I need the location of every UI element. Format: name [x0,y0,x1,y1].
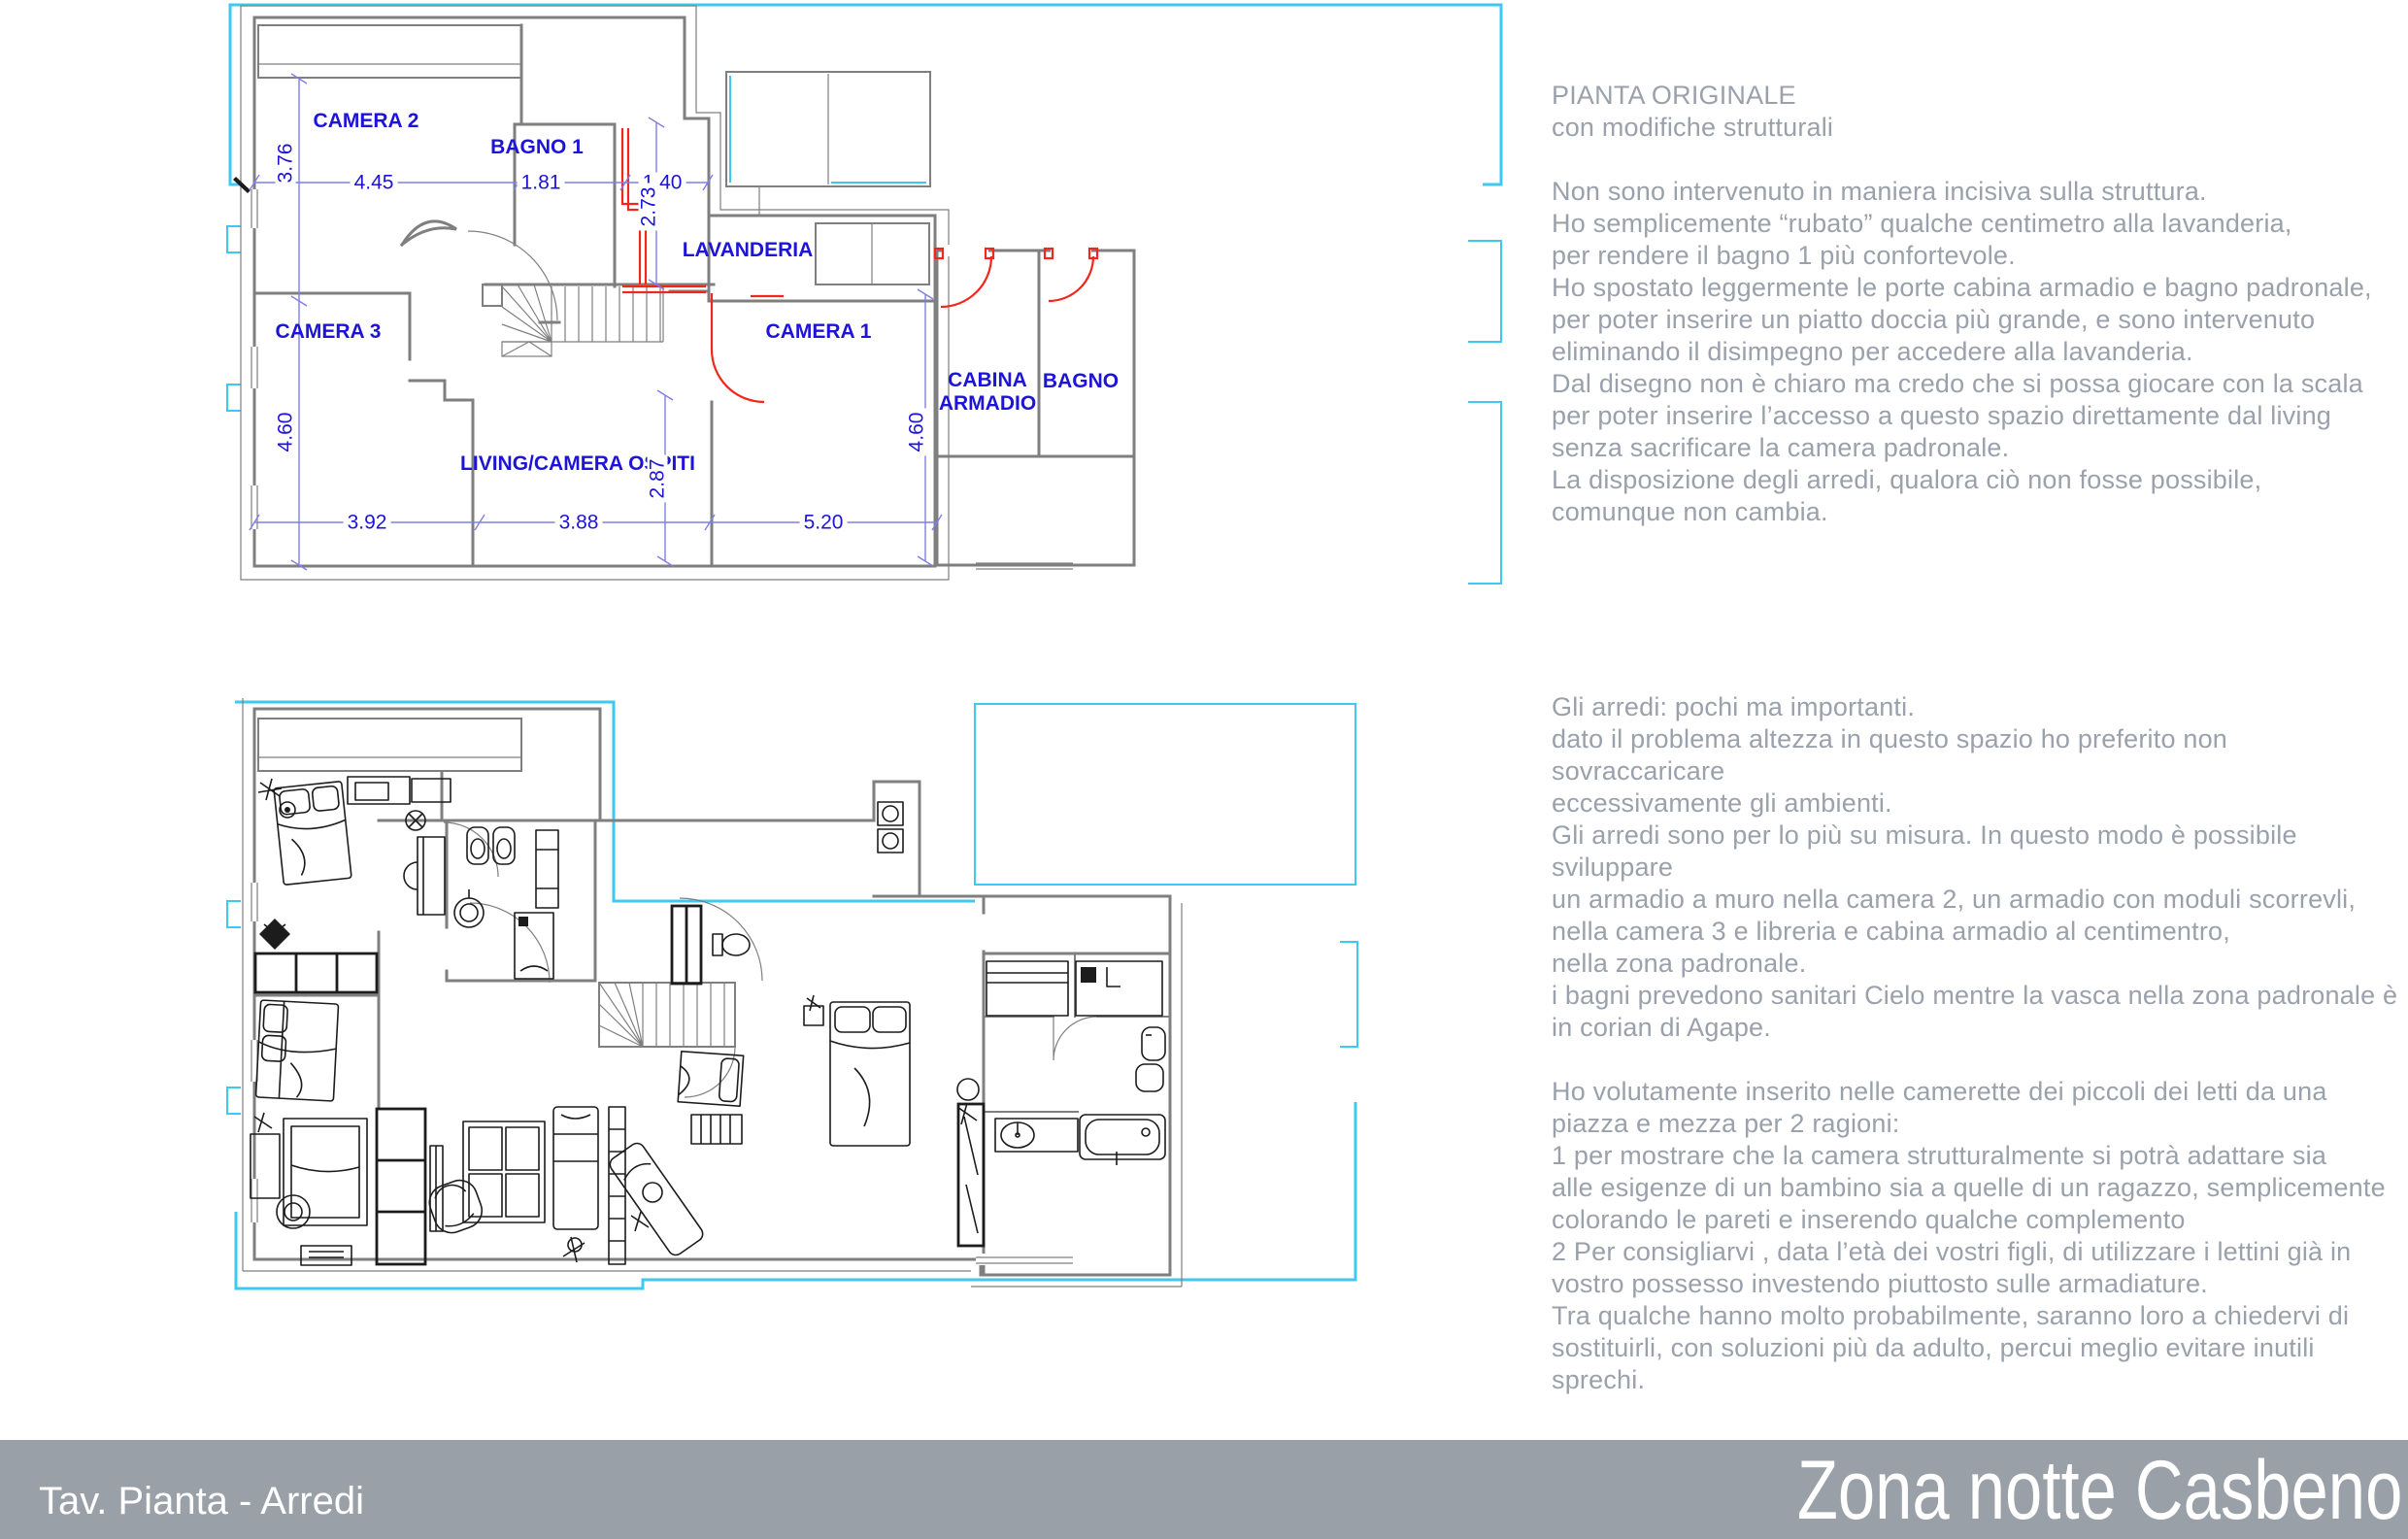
washing-machines [878,802,903,853]
shower [515,913,553,979]
presentation-board: { "colors":{ "cyan":"#3ec9f2","blue":"#1… [0,0,2408,1539]
door-swings [444,822,1097,1097]
dimension-label: 3.88 [555,513,603,533]
chaise-longue [553,1107,598,1262]
note-line: piazza e mezza per 2 ragioni: [1552,1108,2408,1140]
note-line: vostro possesso investendo piuttosto sul… [1552,1268,2408,1300]
wall-desk [404,837,445,915]
note-line: per poter inserire l’accesso a questo sp… [1552,400,2408,432]
dimension-label: 4.45 [351,173,398,193]
dimension-label: 4.60 [276,409,296,456]
note-line: senza sacrificare la camera padronale. [1552,432,2408,464]
dimension-label: 5.20 [800,513,848,533]
window-bracket [227,1087,241,1114]
balcony-bracket [1340,942,1357,1047]
note-line: La disposizione degli arredi, qualora ci… [1552,464,2408,496]
note-line: in corian di Agape. [1552,1012,2408,1044]
note-line: Gli arredi sono per lo più su misura. In… [1552,820,2408,884]
nightstand [804,995,823,1025]
exterior-walls [254,709,1170,1275]
note-line: Non sono intervenuto in maniera incisiva… [1552,176,2408,208]
project-title: Zona notte Casbeno [1797,1443,2402,1539]
note-line: PIANTA ORIGINALE [1552,80,2408,112]
note-line: 1 per mostrare che la camera strutturalm… [1552,1140,2408,1172]
radiator [691,1115,742,1144]
lamp-star-icon [631,1212,649,1231]
sink [454,889,484,927]
bed [274,782,351,886]
dimension-label: 3.76 [276,140,296,187]
room-label: BAGNO 1 [490,136,584,159]
vanity-sink [995,1119,1078,1152]
armchair [424,1176,486,1238]
note-line: Tra qualche hanno molto probabilmente, s… [1552,1300,2408,1332]
modified-doors-annex [935,249,1097,307]
note-line: Gli arredi: pochi ma importanti. [1552,691,2408,723]
window-bracket [227,901,241,927]
title-bar: Tav. Pianta - Arredi Zona notte Casbeno [0,1440,2408,1539]
laundry-counter [987,961,1068,1016]
bidet [1136,1064,1163,1091]
mirror-wardrobe [958,1104,984,1246]
terrace-outline [235,702,975,901]
bookshelf [377,1109,425,1264]
note-line: 2 Per consigliarvi , data l’età dei vost… [1552,1236,2408,1268]
balcony-bracket [1468,241,1501,342]
note-line: dato il problema altezza in questo spazi… [1552,723,2408,787]
note-line: alle esigenze di un bambino sia a quelle… [1552,1172,2408,1204]
sheet-label: Tav. Pianta - Arredi [39,1480,364,1523]
wardrobe [672,906,701,984]
note-line: i bagni prevedono sanitari Cielo mentre … [1552,980,2408,1012]
window-marks [249,883,1073,1265]
note-line: colorando le pareti e inserendo qualche … [1552,1204,2408,1236]
note-line: Ho volutamente inserito nelle camerette … [1552,1076,2408,1108]
master-bed [830,1002,910,1146]
spot-light-icon [643,1183,662,1202]
curved-wall [402,221,456,245]
bed [678,1052,743,1106]
builtin-wardrobe [258,25,521,78]
note-line [1552,144,2408,176]
terrace-rect [975,704,1355,885]
toilet [713,934,750,955]
notes-furnishings: Gli arredi: pochi ma importanti.dato il … [1552,691,2408,1396]
note-line: sostituirli, con soluzioni più da adulto… [1552,1332,2408,1396]
dimension-label: 2.87 [648,455,668,503]
floor-plan-original [227,5,1501,584]
note-line [1552,1044,2408,1076]
sideboard [255,954,377,992]
note-line: eliminando il disimpegno per accedere al… [1552,336,2408,368]
staircase [483,284,714,356]
desk [348,777,451,804]
table [463,1121,545,1222]
dimension-label: 3.92 [344,513,391,533]
window-bracket [227,226,241,252]
balcony-bracket [1468,402,1501,584]
note-line: per rendere il bagno 1 più confortevole. [1552,240,2408,272]
room-label: CABINA ARMADIO [939,369,1036,416]
note-line: un armadio a muro nella camera 2, un arm… [1552,884,2408,916]
room-label: LAVANDERIA [683,239,814,262]
note-line: Ho spostato leggermente le porte cabina … [1552,272,2408,304]
bench [301,1246,351,1265]
room-label: BAGNO [1043,370,1119,393]
bidet [467,827,488,864]
terrace-outline [230,5,1501,184]
reading-lamp-icon [957,1079,979,1124]
note-line: con modifiche strutturali [1552,112,2408,144]
note-line: nella camera 3 e libreria e cabina armad… [1552,916,2408,948]
washer [1076,961,1162,1016]
dimension-label: 1.81 [518,173,565,193]
dimension-label: 4.60 [907,409,927,456]
second-bed [284,1119,367,1225]
bath-cabinet [536,830,558,908]
note-line: Dal disegno non è chiaro ma credo che si… [1552,368,2408,400]
bathtub [1080,1115,1165,1165]
note-line: per poter inserire un piatto doccia più … [1552,304,2408,336]
toilet [493,827,515,864]
room-label: CAMERA 3 [276,320,382,344]
window-bracket [227,385,241,411]
notes-original-plan: PIANTA ORIGINALEcon modifiche struttural… [1552,80,2408,528]
staircase [599,983,735,1047]
note-line: Ho semplicemente “rubato” qualche centim… [1552,208,2408,240]
room-label: CAMERA 2 [314,110,419,133]
note-line: comunque non cambia. [1552,496,2408,528]
desk [251,1113,310,1228]
plant [259,919,290,950]
annex-walls [984,896,1170,1275]
note-line: eccessivamente gli ambienti. [1552,787,2408,820]
bathroom-walls [447,820,595,981]
room-label: CAMERA 1 [766,320,872,344]
dimension-label: 2.73 [639,184,659,231]
builtin-wardrobe [258,719,521,771]
bed [255,1000,338,1101]
note-line: nella zona padronale. [1552,948,2408,980]
toilet [1142,1027,1165,1060]
floor-plan-furnished [227,698,1357,1288]
